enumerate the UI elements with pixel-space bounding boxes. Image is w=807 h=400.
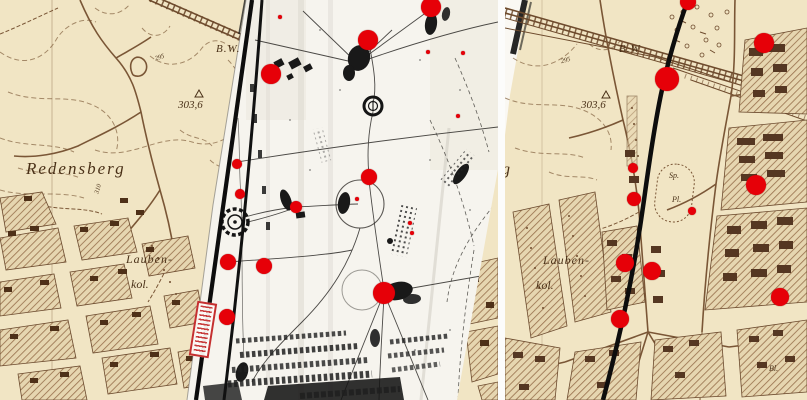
red-dot-marker[interactable] xyxy=(655,67,679,91)
red-dot-marker[interactable] xyxy=(611,310,629,328)
red-dot-marker[interactable] xyxy=(746,175,766,195)
red-dot-marker[interactable] xyxy=(616,254,634,272)
map-comparison-image: Redensberg B.W. 303,6 295 310 Lauben- ko… xyxy=(0,0,807,400)
red-dot-marker[interactable] xyxy=(754,33,774,53)
red-dot-marker[interactable] xyxy=(643,262,661,280)
red-dot-marker[interactable] xyxy=(688,207,696,215)
red-dot-marker[interactable] xyxy=(627,192,641,206)
red-dot-marker[interactable] xyxy=(680,0,696,10)
right-marker-layer xyxy=(0,0,807,400)
red-dot-marker[interactable] xyxy=(771,288,789,306)
red-dot-marker[interactable] xyxy=(628,163,638,173)
